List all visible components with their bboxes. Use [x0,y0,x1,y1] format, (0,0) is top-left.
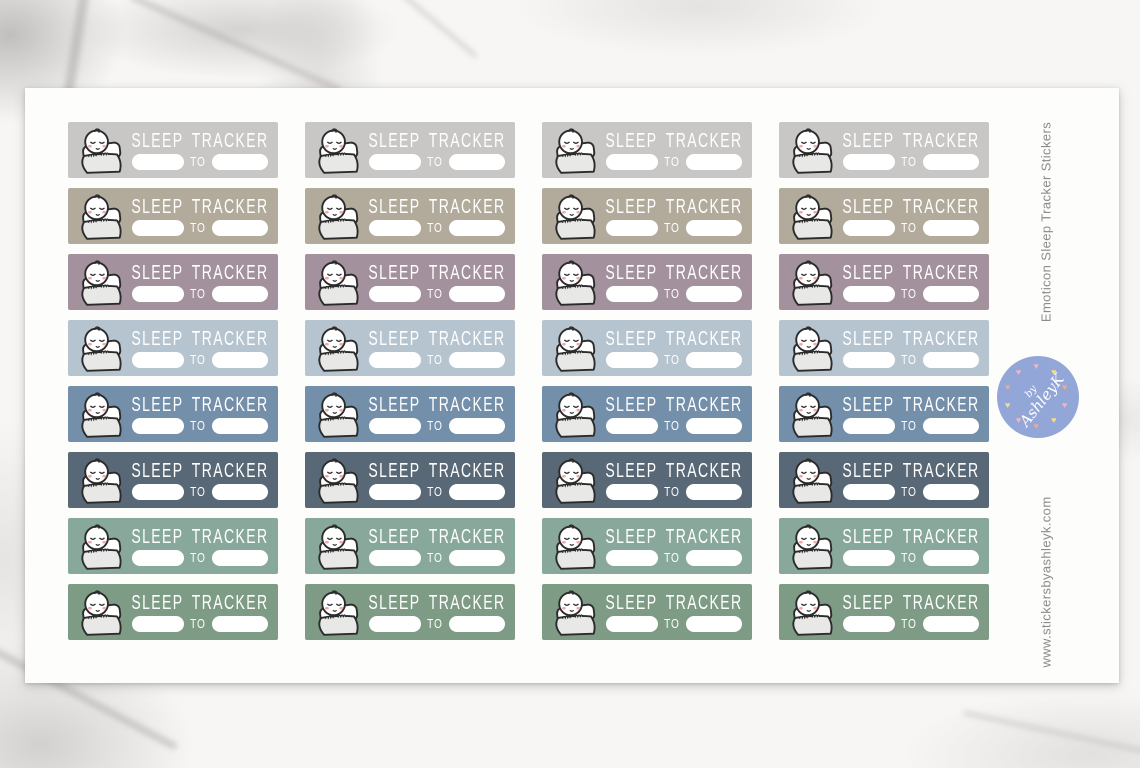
sleep-tracker-sticker: SLEEP TRACKER TO [305,452,515,508]
sticker-time-fields: TO [132,484,268,500]
time-from-blank [132,616,184,632]
sticker-time-fields: TO [843,286,979,302]
time-to-blank [923,352,979,368]
sleep-tracker-sticker: SLEEP TRACKER TO [542,188,752,244]
sticker-body: SLEEP TRACKER TO [130,527,270,566]
sleep-tracker-sticker: SLEEP TRACKER TO [779,122,989,178]
sleeping-emoticon-icon [551,589,598,636]
sticker-body: SLEEP TRACKER TO [367,527,507,566]
sticker-body: SLEEP TRACKER TO [841,131,981,170]
time-from-blank [606,352,658,368]
to-label: TO [901,353,916,366]
to-label: TO [901,287,916,300]
sticker-body: SLEEP TRACKER TO [130,461,270,500]
sleep-tracker-sticker: SLEEP TRACKER TO [779,254,989,310]
sticker-body: SLEEP TRACKER TO [604,461,744,500]
to-label: TO [664,617,679,630]
sleeping-emoticon-icon [551,127,598,174]
sticker-time-fields: TO [606,418,742,434]
sticker-time-fields: TO [843,220,979,236]
sleep-tracker-sticker: SLEEP TRACKER TO [68,584,278,640]
sticker-title: SLEEP TRACKER [131,329,268,349]
time-from-blank [369,484,421,500]
sticker-title: SLEEP TRACKER [605,329,742,349]
time-to-blank [686,220,742,236]
time-from-blank [843,352,895,368]
time-from-blank [369,154,421,170]
to-label: TO [901,155,916,168]
to-label: TO [664,155,679,168]
to-label: TO [190,617,205,630]
sticker-body: SLEEP TRACKER TO [841,461,981,500]
time-from-blank [843,550,895,566]
sleeping-emoticon-icon [314,259,361,306]
sleeping-emoticon-icon [77,325,124,372]
time-to-blank [212,220,268,236]
to-label: TO [664,287,679,300]
time-from-blank [606,616,658,632]
time-to-blank [212,550,268,566]
time-to-blank [212,352,268,368]
to-label: TO [427,617,442,630]
sticker-title: SLEEP TRACKER [368,395,505,415]
sticker-body: SLEEP TRACKER TO [604,263,744,302]
time-from-blank [606,220,658,236]
sticker-title: SLEEP TRACKER [842,527,979,547]
time-from-blank [132,352,184,368]
time-from-blank [606,550,658,566]
time-from-blank [132,550,184,566]
sticker-title: SLEEP TRACKER [368,329,505,349]
to-label: TO [190,221,205,234]
badge-brand-name: AshleyK [1017,372,1067,430]
sticker-body: SLEEP TRACKER TO [841,395,981,434]
sticker-time-fields: TO [369,352,505,368]
sticker-time-fields: TO [369,286,505,302]
sleep-tracker-sticker: SLEEP TRACKER TO [779,188,989,244]
time-to-blank [686,352,742,368]
time-to-blank [923,418,979,434]
to-label: TO [901,419,916,432]
time-to-blank [212,286,268,302]
sticker-time-fields: TO [132,220,268,236]
sticker-body: SLEEP TRACKER TO [130,395,270,434]
sticker-title: SLEEP TRACKER [605,593,742,613]
sticker-body: SLEEP TRACKER TO [367,329,507,368]
to-label: TO [427,353,442,366]
time-to-blank [686,418,742,434]
to-label: TO [427,221,442,234]
time-to-blank [923,550,979,566]
sticker-time-fields: TO [369,418,505,434]
to-label: TO [190,485,205,498]
time-from-blank [843,484,895,500]
time-to-blank [923,616,979,632]
sleep-tracker-sticker: SLEEP TRACKER TO [542,386,752,442]
sticker-time-fields: TO [606,550,742,566]
sticker-time-fields: TO [606,286,742,302]
sticker-time-fields: TO [843,484,979,500]
sleeping-emoticon-icon [551,259,598,306]
sticker-time-fields: TO [132,286,268,302]
sticker-time-fields: TO [606,220,742,236]
time-from-blank [369,286,421,302]
time-to-blank [449,616,505,632]
sleeping-emoticon-icon [77,589,124,636]
sticker-body: SLEEP TRACKER TO [841,197,981,236]
sticker-body: SLEEP TRACKER TO [841,263,981,302]
sleeping-emoticon-icon [314,193,361,240]
sleep-tracker-sticker: SLEEP TRACKER TO [542,518,752,574]
time-to-blank [923,154,979,170]
sticker-title: SLEEP TRACKER [131,263,268,283]
sticker-title: SLEEP TRACKER [842,395,979,415]
sleep-tracker-sticker: SLEEP TRACKER TO [68,452,278,508]
time-from-blank [843,220,895,236]
sticker-body: SLEEP TRACKER TO [604,527,744,566]
sticker-title: SLEEP TRACKER [605,395,742,415]
time-to-blank [686,550,742,566]
sticker-time-fields: TO [132,154,268,170]
sticker-time-fields: TO [606,154,742,170]
sticker-body: SLEEP TRACKER TO [130,593,270,632]
time-from-blank [843,418,895,434]
sleep-tracker-sticker: SLEEP TRACKER TO [305,320,515,376]
time-to-blank [449,484,505,500]
sticker-body: SLEEP TRACKER TO [604,131,744,170]
to-label: TO [190,551,205,564]
sticker-body: SLEEP TRACKER TO [604,329,744,368]
time-from-blank [132,484,184,500]
time-to-blank [449,550,505,566]
sticker-title: SLEEP TRACKER [605,527,742,547]
sleeping-emoticon-icon [77,259,124,306]
sticker-title: SLEEP TRACKER [368,527,505,547]
time-to-blank [686,484,742,500]
time-to-blank [212,484,268,500]
sleep-tracker-sticker: SLEEP TRACKER TO [779,584,989,640]
sticker-title: SLEEP TRACKER [842,197,979,217]
time-from-blank [606,154,658,170]
sticker-body: SLEEP TRACKER TO [130,197,270,236]
sticker-body: SLEEP TRACKER TO [130,263,270,302]
sticker-time-fields: TO [369,550,505,566]
sticker-body: SLEEP TRACKER TO [841,527,981,566]
sleeping-emoticon-icon [314,325,361,372]
to-label: TO [427,551,442,564]
sticker-title: SLEEP TRACKER [605,197,742,217]
to-label: TO [664,551,679,564]
sleeping-emoticon-icon [77,523,124,570]
sticker-title: SLEEP TRACKER [131,197,268,217]
sleeping-emoticon-icon [551,523,598,570]
time-to-blank [686,616,742,632]
time-from-blank [843,616,895,632]
time-from-blank [369,220,421,236]
sleep-tracker-sticker: SLEEP TRACKER TO [305,188,515,244]
sticker-time-fields: TO [369,484,505,500]
time-from-blank [369,550,421,566]
to-label: TO [190,419,205,432]
time-to-blank [449,352,505,368]
sleeping-emoticon-icon [551,193,598,240]
time-to-blank [449,154,505,170]
sticker-title: SLEEP TRACKER [605,461,742,481]
time-from-blank [606,286,658,302]
time-to-blank [212,616,268,632]
sticker-title: SLEEP TRACKER [131,131,268,151]
sleep-tracker-sticker: SLEEP TRACKER TO [68,122,278,178]
sleeping-emoticon-icon [314,391,361,438]
product-title-vertical: Emoticon Sleep Tracker Stickers [1039,122,1054,322]
sticker-title: SLEEP TRACKER [131,593,268,613]
sticker-time-fields: TO [132,550,268,566]
sticker-body: SLEEP TRACKER TO [367,593,507,632]
sleep-tracker-sticker: SLEEP TRACKER TO [68,518,278,574]
sleep-tracker-sticker: SLEEP TRACKER TO [305,518,515,574]
time-from-blank [369,616,421,632]
sleeping-emoticon-icon [314,589,361,636]
time-to-blank [212,418,268,434]
sleep-tracker-sticker: SLEEP TRACKER TO [305,584,515,640]
to-label: TO [664,485,679,498]
sticker-time-fields: TO [132,352,268,368]
sticker-title: SLEEP TRACKER [368,131,505,151]
sticker-body: SLEEP TRACKER TO [604,593,744,632]
sticker-title: SLEEP TRACKER [605,263,742,283]
sticker-time-fields: TO [606,352,742,368]
time-from-blank [606,484,658,500]
time-to-blank [449,286,505,302]
time-to-blank [686,154,742,170]
sleep-tracker-sticker: SLEEP TRACKER TO [305,254,515,310]
time-from-blank [369,418,421,434]
to-label: TO [664,353,679,366]
sticker-body: SLEEP TRACKER TO [604,395,744,434]
sleep-tracker-sticker: SLEEP TRACKER TO [68,320,278,376]
sleeping-emoticon-icon [788,193,835,240]
to-label: TO [190,353,205,366]
sleeping-emoticon-icon [314,127,361,174]
sticker-title: SLEEP TRACKER [842,329,979,349]
sticker-body: SLEEP TRACKER TO [367,263,507,302]
sleeping-emoticon-icon [788,523,835,570]
sleeping-emoticon-icon [788,391,835,438]
sticker-time-fields: TO [606,484,742,500]
sleeping-emoticon-icon [314,523,361,570]
sticker-title: SLEEP TRACKER [842,131,979,151]
sleep-tracker-sticker: SLEEP TRACKER TO [542,320,752,376]
sleep-tracker-sticker: SLEEP TRACKER TO [779,518,989,574]
sticker-title: SLEEP TRACKER [131,395,268,415]
sleep-tracker-sticker: SLEEP TRACKER TO [68,254,278,310]
sticker-title: SLEEP TRACKER [131,461,268,481]
sticker-time-fields: TO [843,418,979,434]
sleep-tracker-sticker: SLEEP TRACKER TO [542,452,752,508]
sleeping-emoticon-icon [788,259,835,306]
sticker-title: SLEEP TRACKER [368,461,505,481]
sticker-body: SLEEP TRACKER TO [130,131,270,170]
sleeping-emoticon-icon [77,127,124,174]
sticker-sheet: SLEEP TRACKER TO SLEEP TRACKER [25,88,1119,683]
sleeping-emoticon-icon [314,457,361,504]
sleep-tracker-sticker: SLEEP TRACKER TO [542,122,752,178]
time-from-blank [843,286,895,302]
sticker-title: SLEEP TRACKER [131,527,268,547]
time-to-blank [449,220,505,236]
to-label: TO [664,221,679,234]
sticker-title: SLEEP TRACKER [842,263,979,283]
time-to-blank [686,286,742,302]
sticker-time-fields: TO [606,616,742,632]
sticker-title: SLEEP TRACKER [842,461,979,481]
sleeping-emoticon-icon [551,391,598,438]
time-from-blank [843,154,895,170]
sleep-tracker-sticker: SLEEP TRACKER TO [779,386,989,442]
sticker-time-fields: TO [369,616,505,632]
time-from-blank [132,154,184,170]
to-label: TO [901,221,916,234]
sticker-body: SLEEP TRACKER TO [367,131,507,170]
sticker-body: SLEEP TRACKER TO [604,197,744,236]
sleep-tracker-sticker: SLEEP TRACKER TO [305,122,515,178]
sticker-grid: SLEEP TRACKER TO SLEEP TRACKER [68,122,989,640]
time-from-blank [132,286,184,302]
sleeping-emoticon-icon [788,589,835,636]
sticker-title: SLEEP TRACKER [842,593,979,613]
sleep-tracker-sticker: SLEEP TRACKER TO [68,386,278,442]
to-label: TO [427,419,442,432]
sleeping-emoticon-icon [551,457,598,504]
sticker-body: SLEEP TRACKER TO [841,329,981,368]
sticker-body: SLEEP TRACKER TO [367,197,507,236]
sticker-time-fields: TO [843,352,979,368]
sleeping-emoticon-icon [788,325,835,372]
time-from-blank [606,418,658,434]
sleep-tracker-sticker: SLEEP TRACKER TO [779,320,989,376]
time-to-blank [449,418,505,434]
sleep-tracker-sticker: SLEEP TRACKER TO [779,452,989,508]
sticker-body: SLEEP TRACKER TO [367,395,507,434]
sleep-tracker-sticker: SLEEP TRACKER TO [305,386,515,442]
sleeping-emoticon-icon [551,325,598,372]
to-label: TO [901,485,916,498]
sticker-body: SLEEP TRACKER TO [367,461,507,500]
time-from-blank [369,352,421,368]
time-to-blank [923,484,979,500]
sleeping-emoticon-icon [788,457,835,504]
sleeping-emoticon-icon [77,457,124,504]
time-from-blank [132,418,184,434]
to-label: TO [427,485,442,498]
to-label: TO [427,155,442,168]
sticker-time-fields: TO [843,616,979,632]
to-label: TO [190,287,205,300]
time-to-blank [212,154,268,170]
sticker-time-fields: TO [843,154,979,170]
sticker-time-fields: TO [369,154,505,170]
sticker-title: SLEEP TRACKER [605,131,742,151]
to-label: TO [901,551,916,564]
brand-badge: ♥♥♥♥♥♥♥♥♥♥ by AshleyK [997,356,1079,438]
time-to-blank [923,220,979,236]
sleeping-emoticon-icon [77,391,124,438]
sleep-tracker-sticker: SLEEP TRACKER TO [542,254,752,310]
sticker-time-fields: TO [132,418,268,434]
to-label: TO [427,287,442,300]
time-to-blank [923,286,979,302]
to-label: TO [190,155,205,168]
sleep-tracker-sticker: SLEEP TRACKER TO [542,584,752,640]
sticker-time-fields: TO [843,550,979,566]
website-url-vertical: www.stickersbyashleyk.com [1039,496,1054,667]
sticker-title: SLEEP TRACKER [368,263,505,283]
to-label: TO [664,419,679,432]
sticker-time-fields: TO [132,616,268,632]
sticker-title: SLEEP TRACKER [368,197,505,217]
sticker-body: SLEEP TRACKER TO [130,329,270,368]
sticker-time-fields: TO [369,220,505,236]
sleeping-emoticon-icon [77,193,124,240]
sticker-title: SLEEP TRACKER [368,593,505,613]
time-from-blank [132,220,184,236]
sticker-body: SLEEP TRACKER TO [841,593,981,632]
to-label: TO [901,617,916,630]
sleeping-emoticon-icon [788,127,835,174]
sleep-tracker-sticker: SLEEP TRACKER TO [68,188,278,244]
